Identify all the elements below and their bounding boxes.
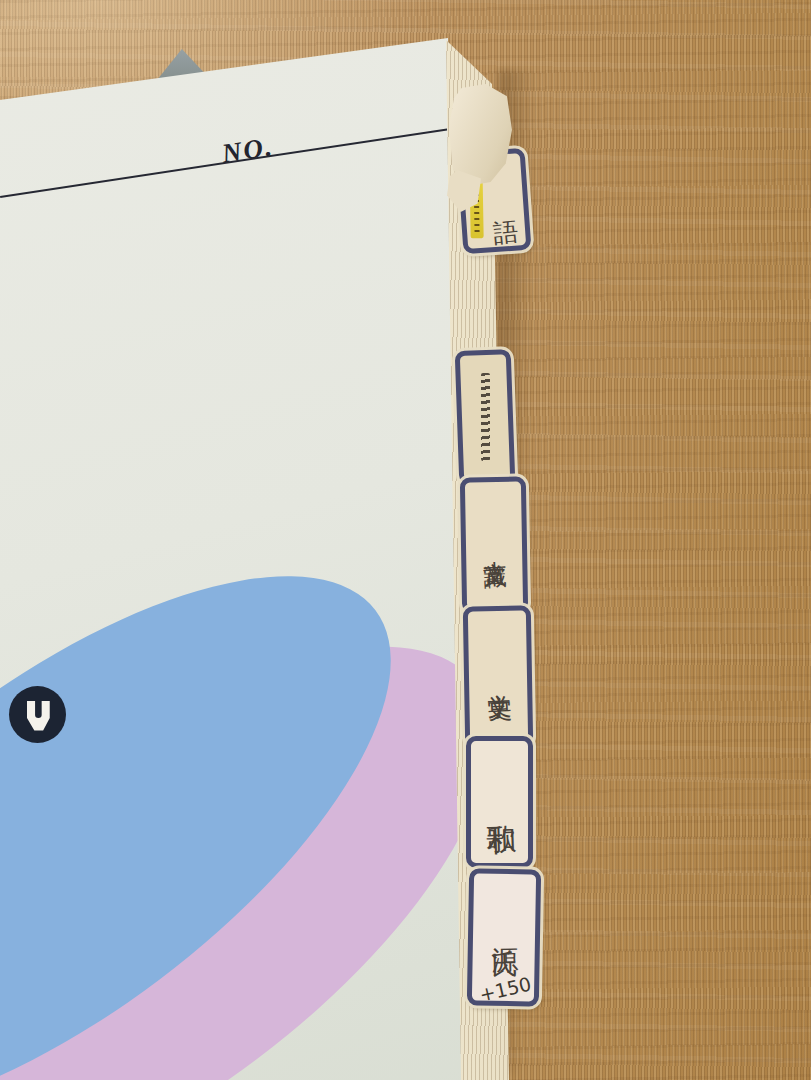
tab-label: 古文常識: [478, 542, 509, 548]
tab-note: +150: [477, 972, 533, 1005]
handwriting-scribble: [481, 373, 490, 461]
tab-label: 和歌: [479, 799, 520, 804]
index-tab-3: 古文常識: [460, 476, 528, 613]
no-label: NO.: [220, 131, 276, 169]
tab-label: 語: [485, 198, 518, 203]
index-tab-4: 文学史: [463, 605, 533, 747]
index-tab-5: 和歌: [466, 736, 533, 868]
photo-scene: NO. 語 古文常識 文学史 和歌 源氏 +150: [0, 0, 811, 1080]
publisher-logo: [9, 686, 66, 743]
index-tab-6: 源氏 +150: [467, 868, 541, 1006]
tab-label: 文学史: [482, 673, 514, 681]
index-tab-2: [455, 349, 516, 485]
tab-label: 源氏: [486, 925, 522, 930]
logo-u-icon: [16, 693, 60, 737]
